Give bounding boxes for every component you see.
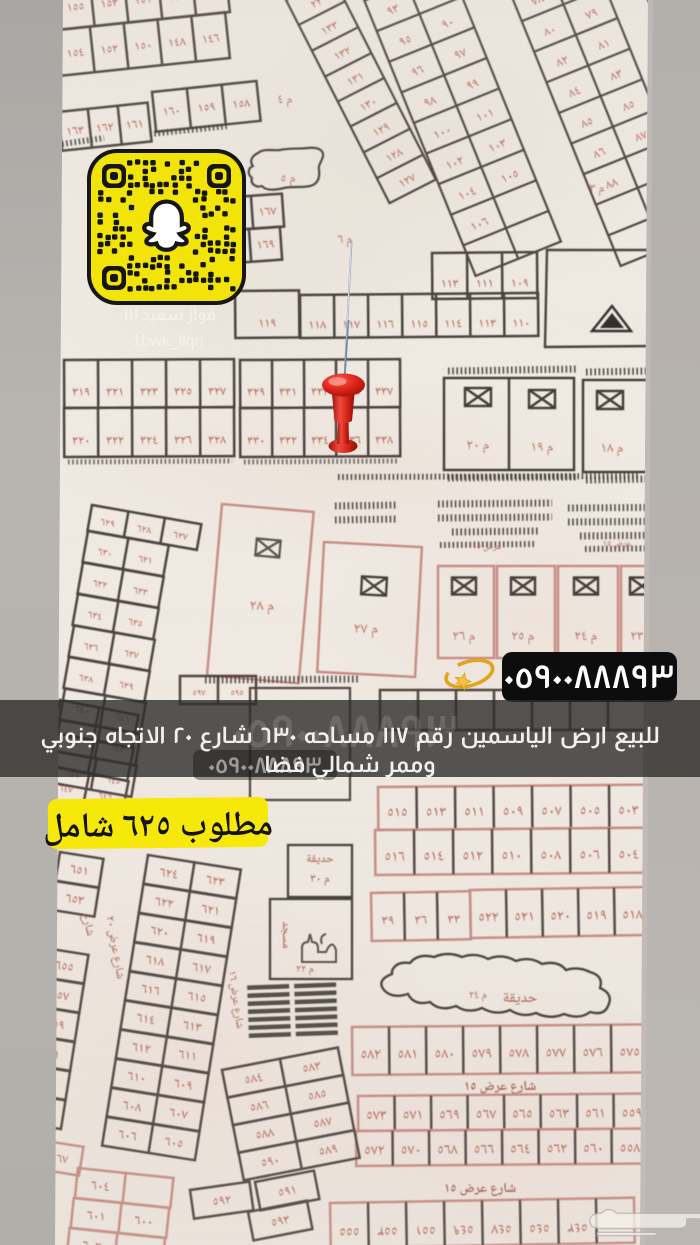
svg-text:1bwk_llqn: 1bwk_llqn	[132, 333, 203, 350]
